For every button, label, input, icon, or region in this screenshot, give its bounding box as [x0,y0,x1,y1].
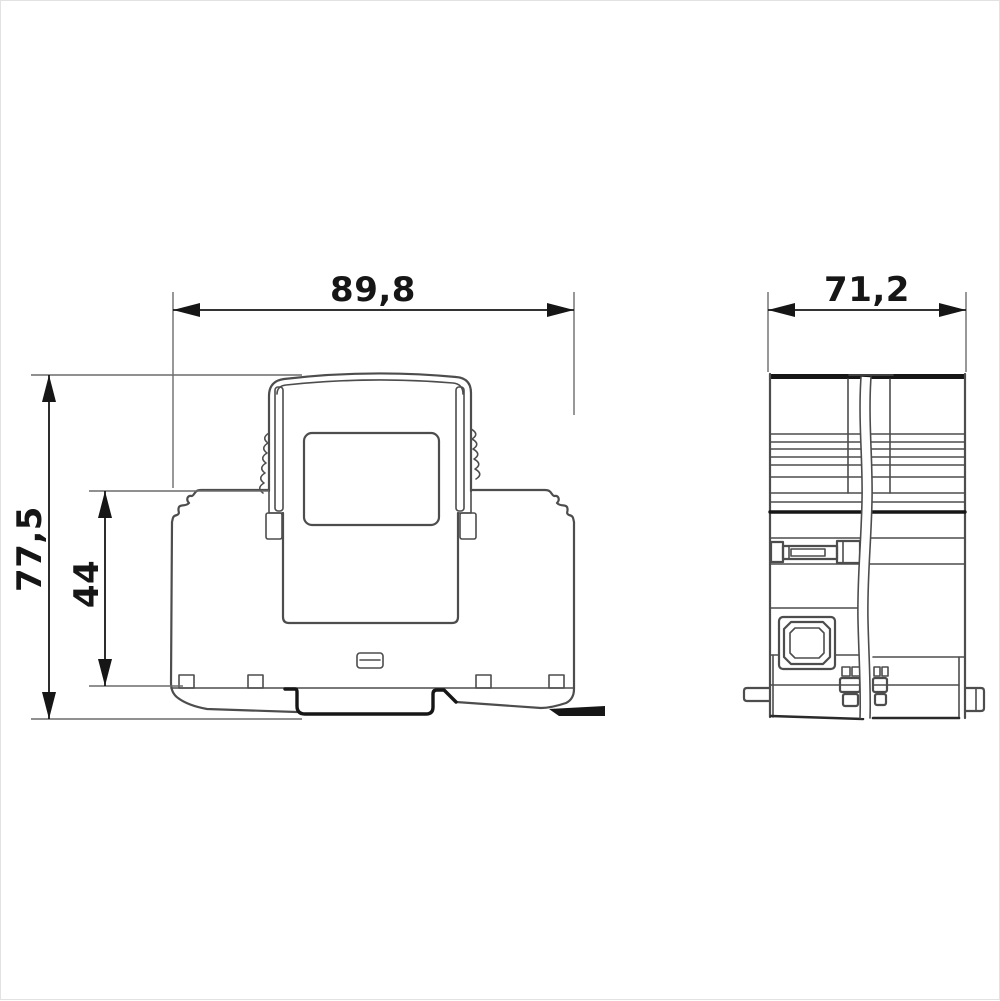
dimensional-drawing: 89,8 71,2 77,5 44 [1,1,1000,1001]
arrowhead [939,303,966,317]
front-plug-slot-right [456,387,464,511]
side-socket [779,617,835,669]
arrowhead [98,659,112,686]
front-base-left-outline [171,490,297,712]
side-terminal-foot [875,694,886,705]
front-plug-inner-top-line [277,380,463,394]
technical-drawing-canvas: 89,8 71,2 77,5 44 [0,0,1000,1000]
front-plug-window [304,433,439,525]
side-view [744,374,984,719]
front-plug-lower-outline [283,513,458,623]
arrowhead [98,491,112,518]
arrowhead [42,692,56,719]
dimension-side-width: 71,2 [768,270,966,372]
side-bottom-edge-left [771,716,863,719]
front-view [171,373,605,716]
side-terminal-cap [842,667,850,676]
dimension-overall-height: 77,5 [10,375,302,719]
front-plug-serration-left [260,433,269,493]
dim-rail-height-label: 44 [67,560,107,608]
front-plug-slot-left [275,387,283,511]
dim-side-width-label: 71,2 [824,270,910,310]
side-terminal-foot [843,694,858,706]
side-latch [771,541,860,563]
front-din-recess [285,689,456,714]
front-bottom-tab [248,675,263,688]
front-rail-end-wedge [549,706,605,716]
arrowhead [173,303,200,317]
front-plug-serration-right [471,429,480,479]
front-plug [260,373,480,623]
dim-overall-height-label: 77,5 [10,506,50,592]
front-bottom-tab [549,675,564,688]
side-terminal-cap [882,667,888,676]
side-latch-block [837,541,860,563]
front-plug-tab-left [266,513,282,539]
side-latch-bar-inner [791,549,825,556]
side-socket-inner [790,628,824,658]
side-din-clip-left [744,688,769,701]
arrowhead [547,303,574,317]
dimension-rail-height: 44 [67,491,269,686]
dimension-front-width: 89,8 [173,270,574,488]
front-plug-tab-right [460,513,476,539]
front-bottom-tab [476,675,491,688]
side-terminal-cap [874,667,880,676]
arrowhead [42,375,56,402]
side-latch-end [771,542,783,562]
side-din-clip-right [965,688,984,711]
arrowhead [768,303,795,317]
dim-front-width-label: 89,8 [330,270,416,310]
